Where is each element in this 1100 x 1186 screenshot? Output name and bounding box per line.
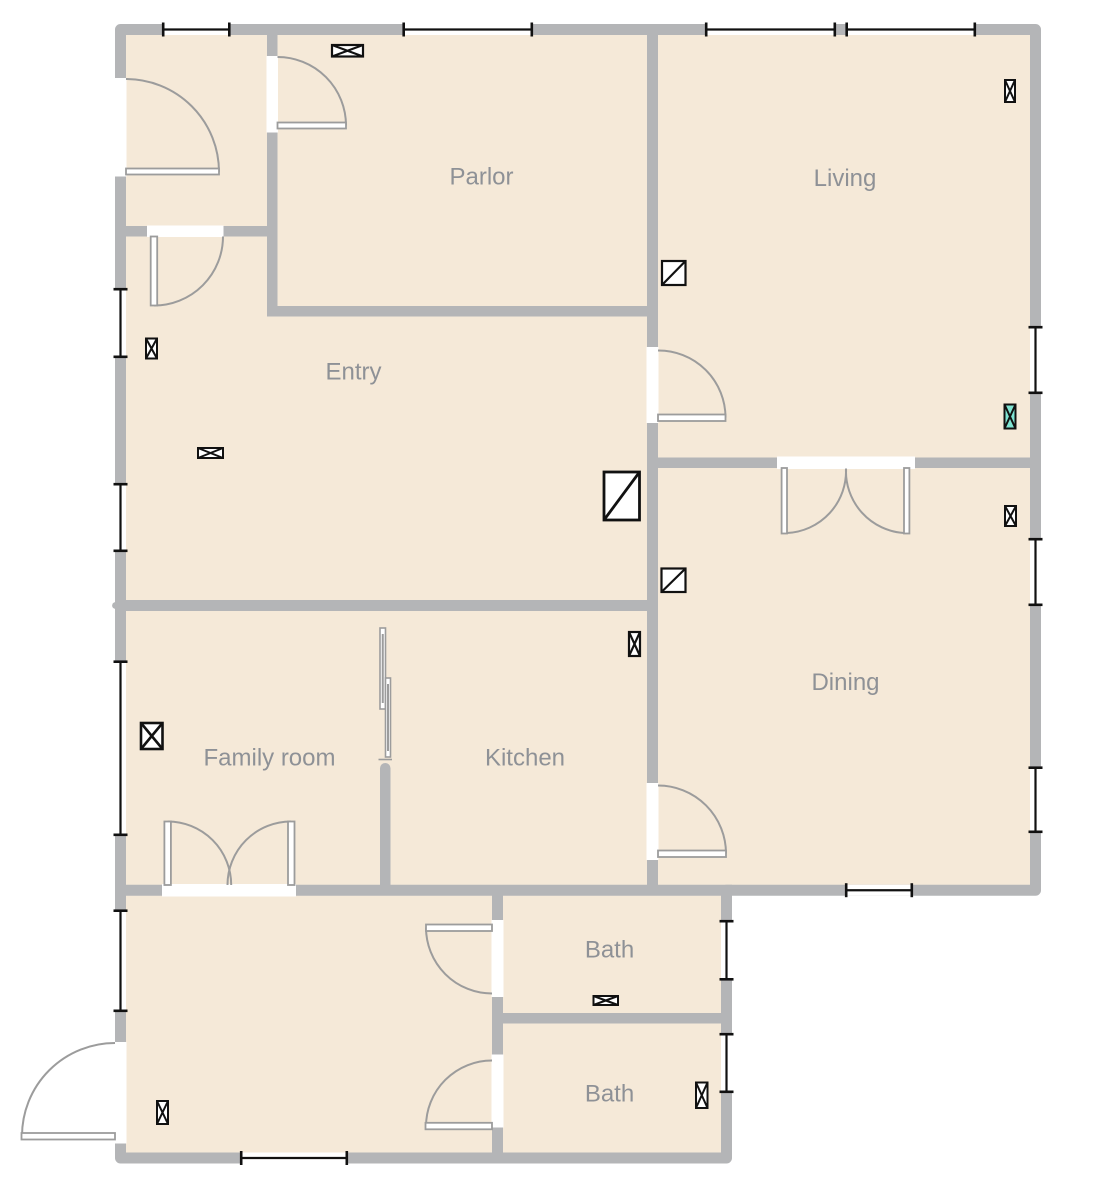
svg-text:Family room: Family room	[203, 745, 335, 772]
svg-text:Entry: Entry	[325, 359, 381, 386]
svg-text:Kitchen: Kitchen	[485, 745, 565, 772]
svg-text:Living: Living	[814, 165, 877, 192]
svg-text:Parlor: Parlor	[449, 164, 513, 191]
svg-text:Bath: Bath	[585, 937, 634, 964]
svg-text:Dining: Dining	[811, 669, 879, 696]
svg-text:Bath: Bath	[585, 1081, 634, 1108]
